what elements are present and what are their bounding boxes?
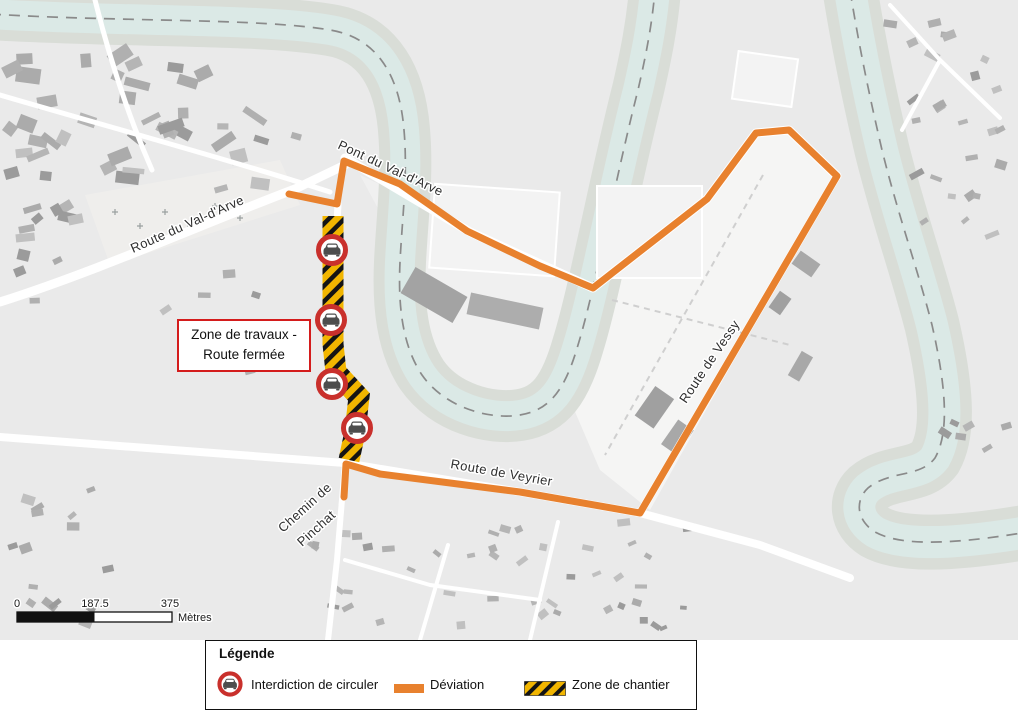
building [178,108,189,119]
callout-line1: Zone de travaux - [181,325,307,345]
building [456,621,465,630]
scale-unit: Mètres [178,612,212,624]
building [311,541,319,550]
building [223,269,236,278]
building [955,433,966,441]
legend-item-chantier: Zone de chantier [572,677,670,692]
building [680,605,687,609]
building [617,518,631,527]
scale-tick-max: 375 [161,598,179,610]
no-entry-sign [344,415,371,442]
building [948,193,956,199]
building [30,298,40,304]
building [67,522,80,530]
callout-zone-travaux: Zone de travaux - Route fermée [177,319,311,372]
map-canvas: Pont du Val-d'Arve Route du Val-d'Arve R… [0,0,1018,640]
callout-line2: Route fermée [181,345,307,365]
building [382,545,395,552]
building [640,617,648,624]
map-page: Pont du Val-d'Arve Route du Val-d'Arve R… [0,0,1018,720]
scale-tick-0: 0 [14,598,20,610]
deviation-line-icon [394,684,424,693]
building [566,574,575,580]
legend: Légende Interdiction de circuler Déviati… [205,640,697,710]
building [343,589,352,594]
building [539,543,548,551]
legend-item-interdiction: Interdiction de circuler [251,677,378,692]
building [635,584,647,588]
building [352,532,363,540]
no-entry-sign [318,307,345,334]
no-entry-sign [319,237,346,264]
building [217,123,228,129]
scale-tick-mid: 187.5 [81,598,109,610]
construction-hatch-icon [524,681,566,696]
building [80,53,91,68]
building [198,292,211,298]
no-entry-sign [319,371,346,398]
no-entry-sign-icon [217,671,243,697]
building [40,171,52,181]
building [487,596,499,602]
legend-title: Légende [219,646,275,661]
legend-item-deviation: Déviation [430,677,484,692]
